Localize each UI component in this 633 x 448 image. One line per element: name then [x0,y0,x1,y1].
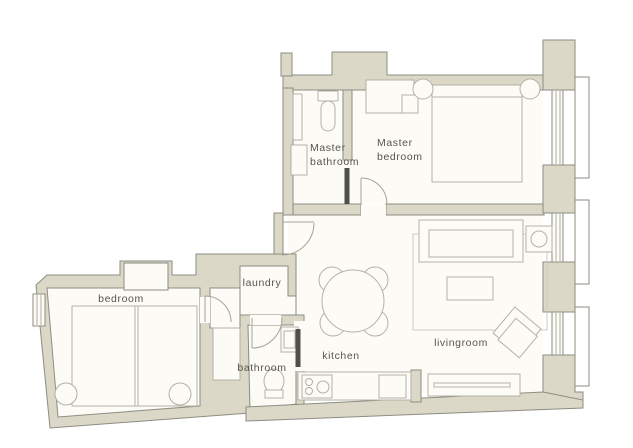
dining-table [322,270,384,332]
toilet-tank [265,390,283,398]
wall-pier-east-3 [543,262,575,312]
laundry-floor [240,266,296,315]
masterbed-door-gap [361,205,386,216]
floor-plan: Master bathroom Master bedroom bedroom l… [0,0,633,448]
wall-hall-west [274,213,283,255]
sofa-seat [429,230,513,257]
label-laundry: laundry [243,277,282,289]
nightstand-right [520,79,540,99]
window-east-1 [552,90,563,165]
wall-kitchen-pier [411,370,421,402]
wall-top-left-stub [281,53,292,76]
master-toilet-bowl [321,101,335,131]
bathroom-door-gap [250,315,281,325]
wall-pier-top-right [543,40,575,90]
wardrobe-step [402,95,418,113]
label-master-bathroom-1: Master [310,142,346,154]
master-bathroom-counter [293,94,302,140]
label-livingroom: livingroom [434,337,488,349]
window-east-3 [552,312,563,355]
label-bathroom: bathroom [237,362,286,374]
wall-pier-east-2 [543,165,575,213]
masterbath-sliding-door [345,168,350,204]
master-toilet-tank [318,91,338,101]
balcony-3 [575,307,589,386]
floor-plan-svg: Master bathroom Master bedroom bedroom l… [0,0,633,448]
label-master-bedroom-2: bedroom [377,151,423,163]
window-bedroom [33,294,45,326]
bedroom-stool-left [55,383,77,405]
window-east-2 [552,213,563,262]
master-bathroom-sink [291,145,307,175]
hall-closet [213,328,240,380]
label-master-bedroom-1: Master [377,137,413,149]
kitchen-sink [379,375,406,398]
label-kitchen: kitchen [322,350,359,362]
balcony-1 [575,77,589,178]
hall-floor [210,288,240,328]
bedroom-stool-right [169,383,191,405]
wall-masterbath-bottom [293,204,361,215]
wall-masterbed-bottom [386,204,544,215]
nightstand-left [413,79,433,99]
balcony-2 [575,200,589,284]
side-table [526,226,552,252]
tv-console [428,374,520,396]
coffee-table [447,277,493,300]
label-master-bathroom-2: bathroom [310,156,359,168]
label-bedroom: bedroom [98,293,144,305]
bedroom-niche-floor [124,263,168,290]
master-bed [432,85,522,182]
bathroom-pocket-door [296,329,301,367]
